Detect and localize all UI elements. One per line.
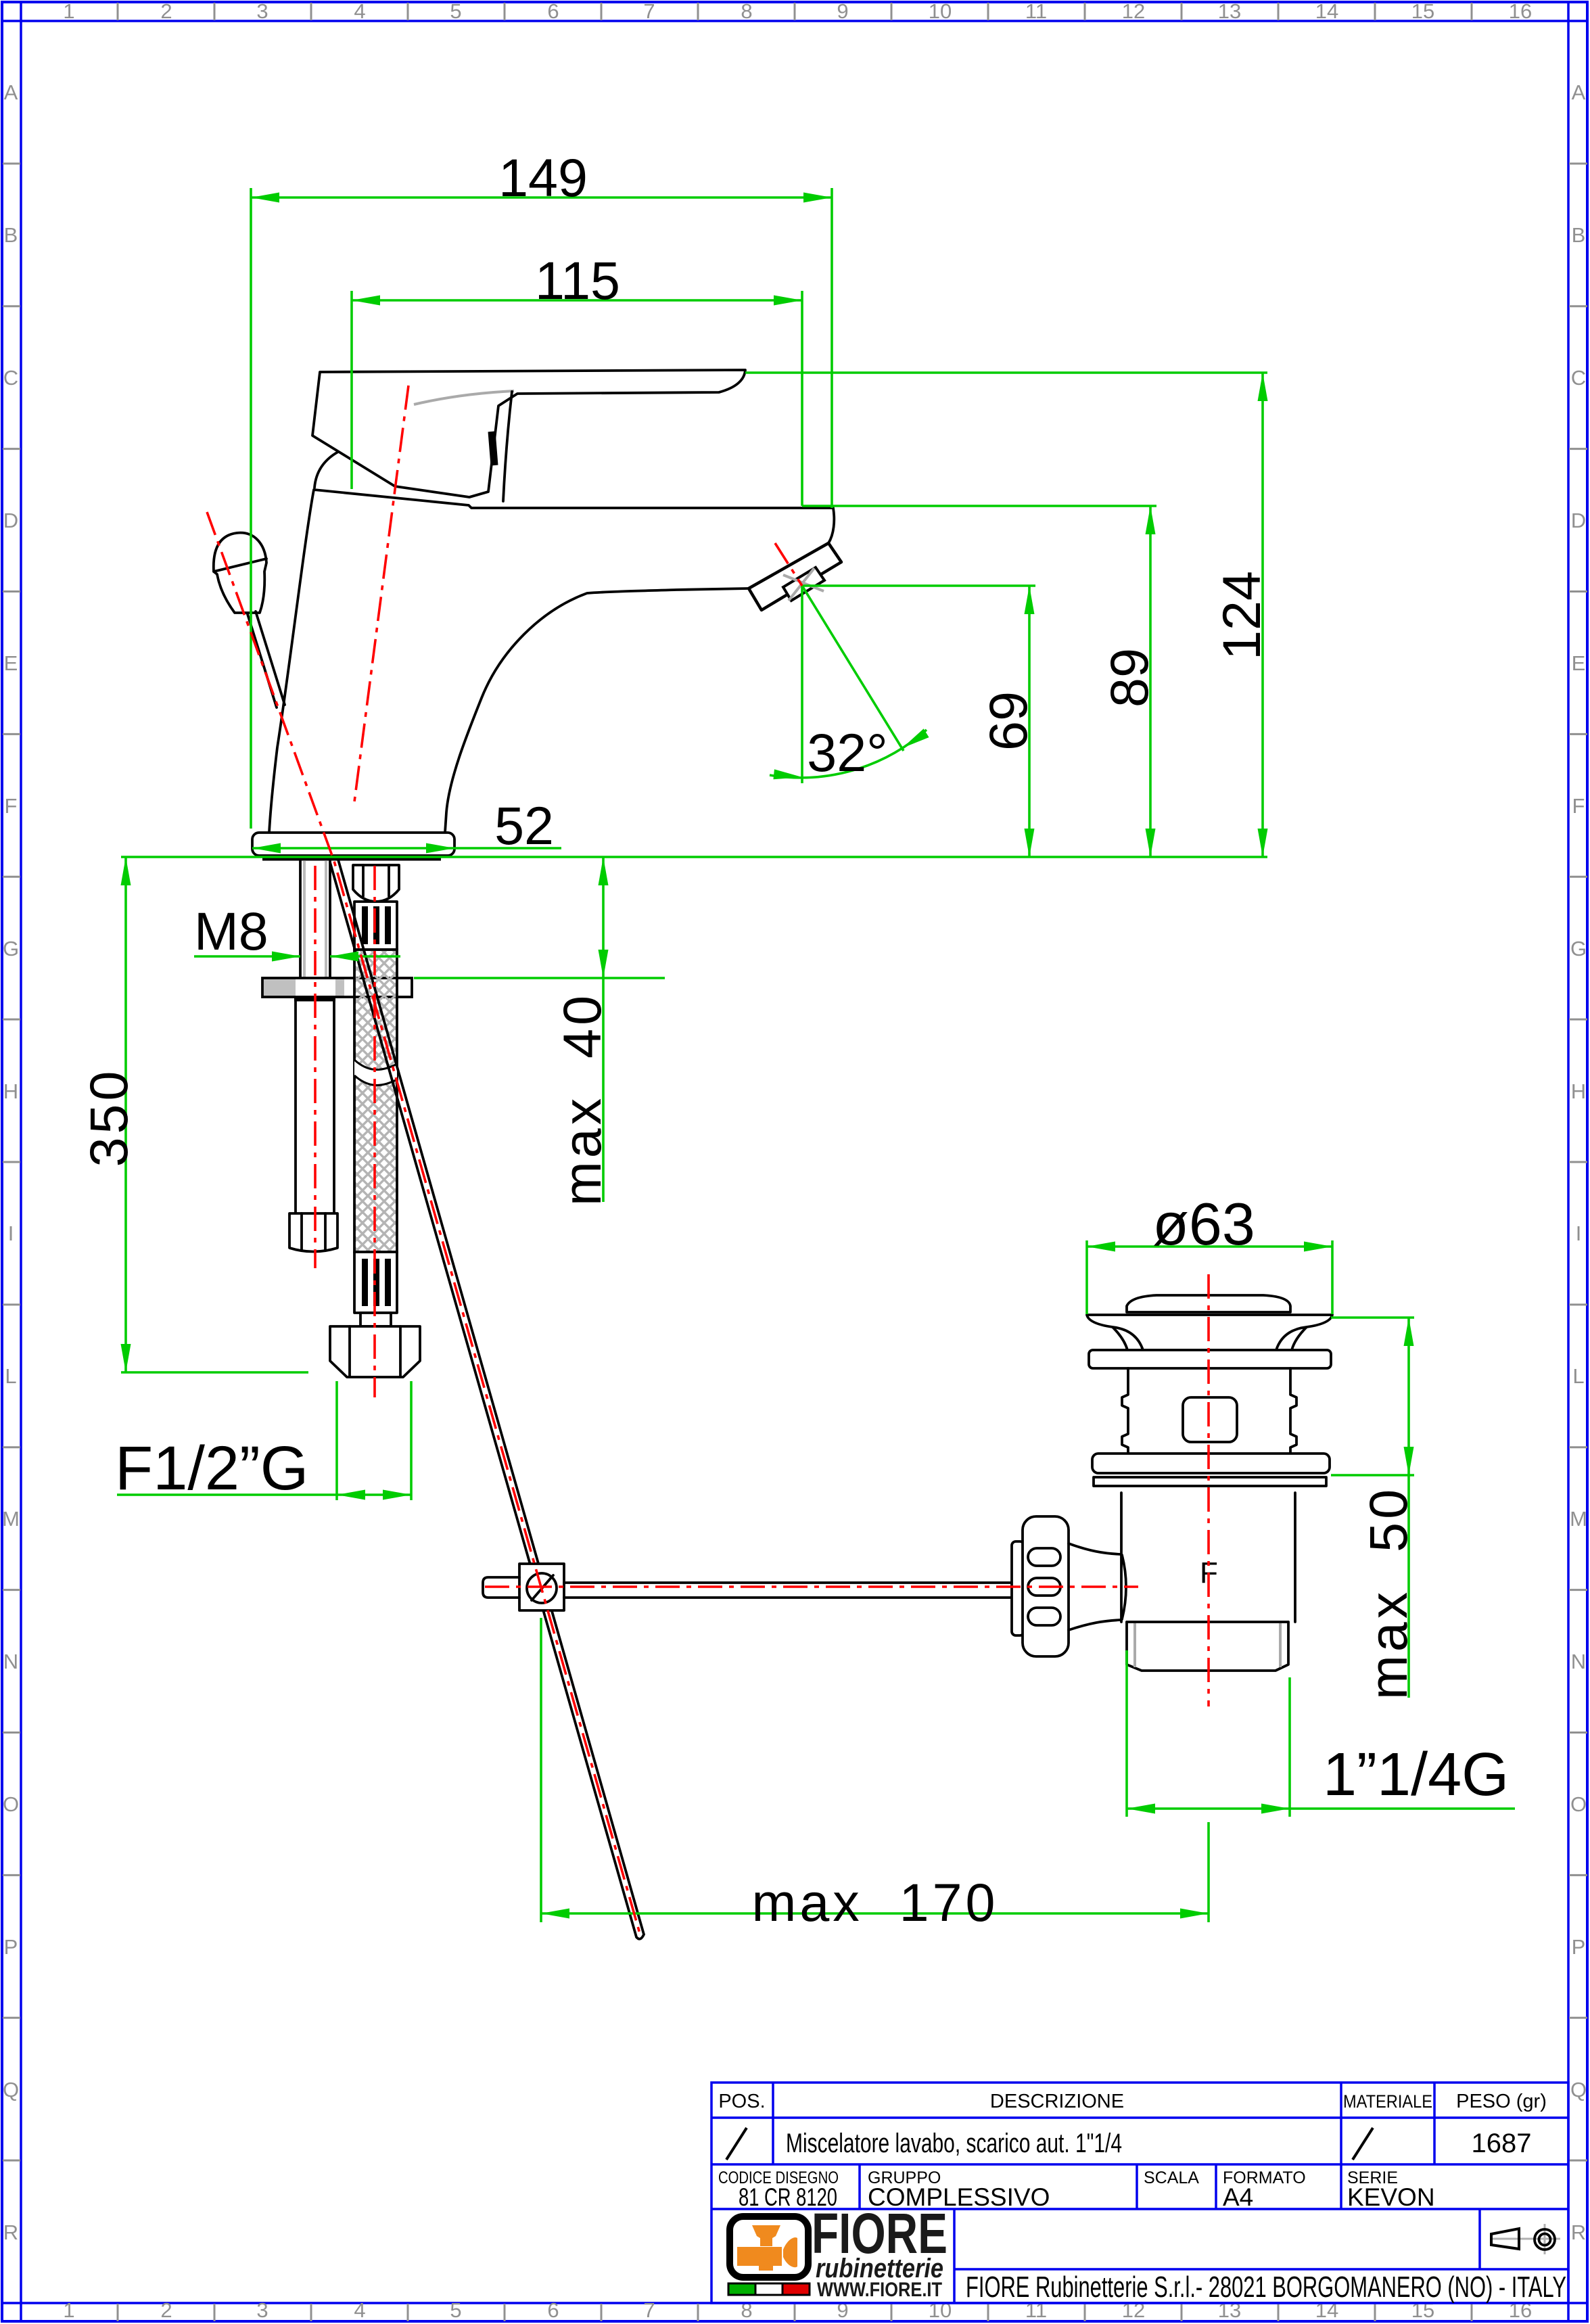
svg-text:D: D [3, 509, 18, 532]
svg-text:3: 3 [256, 2298, 268, 2322]
svg-text:4: 4 [354, 2298, 365, 2322]
svg-text:15: 15 [1411, 0, 1434, 23]
svg-text:max 50: max 50 [1358, 1486, 1418, 1700]
svg-text:D: D [1571, 509, 1586, 532]
svg-text:max 170: max 170 [752, 1872, 999, 1932]
svg-text:124: 124 [1211, 571, 1271, 660]
svg-text:6: 6 [547, 2298, 559, 2322]
svg-text:1: 1 [63, 0, 74, 23]
svg-text:12: 12 [1122, 0, 1145, 23]
svg-text:F1/2”G: F1/2”G [115, 1434, 308, 1503]
svg-text:PESO (gr): PESO (gr) [1456, 2091, 1547, 2112]
svg-text:WWW.FIORE.IT: WWW.FIORE.IT [817, 2279, 942, 2301]
svg-text:M: M [1570, 1507, 1587, 1531]
svg-text:2: 2 [160, 2298, 172, 2322]
svg-text:R: R [1571, 2221, 1586, 2244]
svg-text:89: 89 [1099, 648, 1159, 707]
svg-text:1687: 1687 [1472, 2129, 1532, 2158]
svg-text:13: 13 [1218, 0, 1241, 23]
svg-text:I: I [1576, 1222, 1582, 1245]
svg-text:L: L [1572, 1364, 1584, 1388]
svg-text:10: 10 [929, 0, 952, 23]
svg-text:14: 14 [1315, 0, 1338, 23]
svg-text:ø63: ø63 [1152, 1190, 1255, 1257]
svg-text:I: I [8, 1222, 14, 1245]
svg-text:P: P [4, 1935, 18, 1959]
svg-text:32°: 32° [807, 722, 887, 783]
svg-text:N: N [3, 1650, 18, 1673]
svg-text:Q: Q [3, 2078, 19, 2101]
svg-text:1: 1 [63, 2298, 74, 2322]
svg-text:F: F [1572, 794, 1585, 818]
svg-text:6: 6 [547, 0, 559, 23]
svg-text:G: G [3, 937, 19, 960]
svg-text:Miscelatore lavabo, scarico au: Miscelatore lavabo, scarico aut. 1"1/4 [786, 2129, 1122, 2158]
svg-text:350: 350 [78, 1068, 139, 1167]
svg-text:1”1/4G: 1”1/4G [1323, 1741, 1509, 1809]
svg-text:115: 115 [535, 250, 620, 310]
svg-text:3: 3 [256, 0, 268, 23]
svg-text:2: 2 [160, 0, 172, 23]
svg-text:8: 8 [741, 0, 752, 23]
svg-text:B: B [1572, 223, 1586, 247]
svg-text:Q: Q [1570, 2078, 1587, 2101]
svg-text:max 40: max 40 [552, 992, 612, 1206]
svg-text:N: N [1571, 1650, 1586, 1673]
svg-text:G: G [1570, 937, 1587, 960]
svg-text:C: C [1571, 366, 1586, 390]
svg-text:SCALA: SCALA [1144, 2168, 1199, 2187]
svg-text:16: 16 [1509, 0, 1532, 23]
svg-text:7: 7 [643, 0, 655, 23]
svg-text:A: A [1572, 80, 1586, 104]
svg-text:L: L [5, 1364, 16, 1388]
svg-text:R: R [3, 2221, 18, 2244]
svg-text:O: O [1570, 1792, 1587, 1816]
svg-text:A4: A4 [1223, 2183, 1253, 2211]
svg-text:9: 9 [837, 0, 848, 23]
svg-text:11: 11 [1025, 0, 1047, 23]
svg-text:69: 69 [978, 691, 1038, 751]
svg-text:52: 52 [494, 795, 554, 856]
svg-text:H: H [3, 1079, 18, 1103]
svg-text:FIORE Rubinetterie S.r.l.- 280: FIORE Rubinetterie S.r.l.- 28021 BORGOMA… [966, 2271, 1566, 2304]
svg-text:C: C [3, 366, 18, 390]
svg-text:DESCRIZIONE: DESCRIZIONE [990, 2091, 1124, 2112]
svg-text:4: 4 [354, 0, 365, 23]
svg-text:E: E [1572, 651, 1586, 675]
svg-text:F: F [5, 794, 18, 818]
svg-text:7: 7 [643, 2298, 655, 2322]
svg-text:5: 5 [450, 0, 461, 23]
svg-text:KEVON: KEVON [1347, 2183, 1435, 2211]
svg-text:A: A [4, 80, 18, 104]
svg-text:M: M [2, 1507, 20, 1531]
svg-text:M8: M8 [194, 901, 268, 961]
svg-text:O: O [3, 1792, 19, 1816]
svg-text:MATERIALE: MATERIALE [1343, 2091, 1432, 2112]
svg-text:B: B [4, 223, 18, 247]
svg-text:P: P [1572, 1935, 1586, 1959]
svg-text:E: E [4, 651, 18, 675]
svg-text:H: H [1571, 1079, 1586, 1103]
svg-text:5: 5 [450, 2298, 461, 2322]
svg-text:POS.: POS. [718, 2091, 765, 2112]
svg-text:149: 149 [498, 147, 588, 208]
